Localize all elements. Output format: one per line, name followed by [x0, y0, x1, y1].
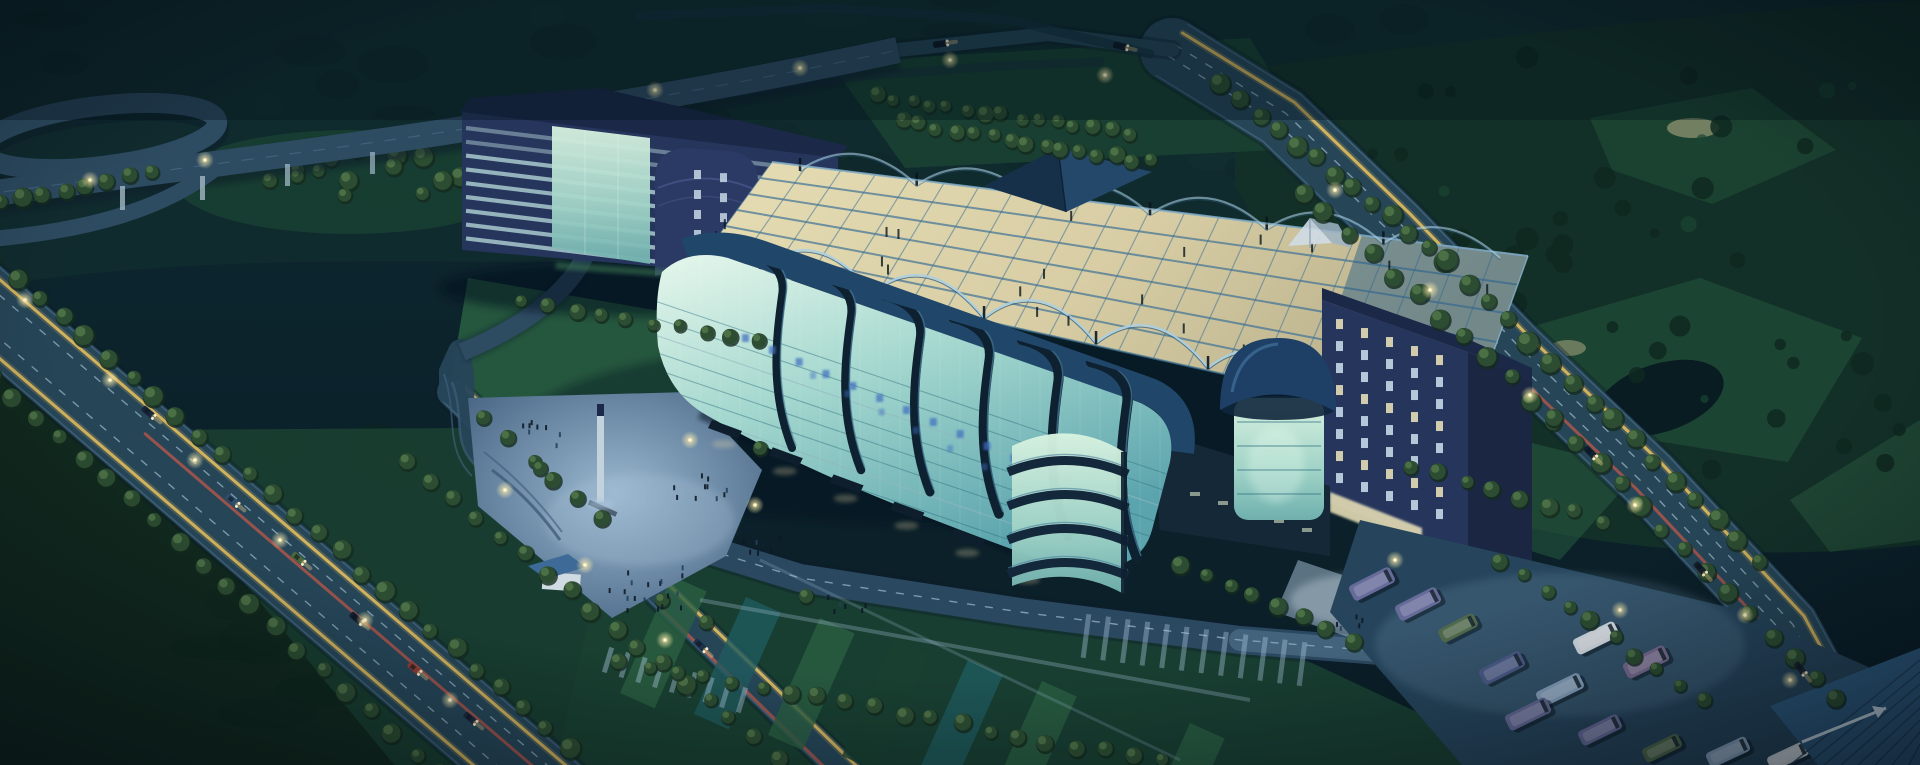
scene-svg [0, 0, 1920, 765]
rendering-canvas [0, 0, 1920, 765]
vignette [0, 0, 1920, 765]
